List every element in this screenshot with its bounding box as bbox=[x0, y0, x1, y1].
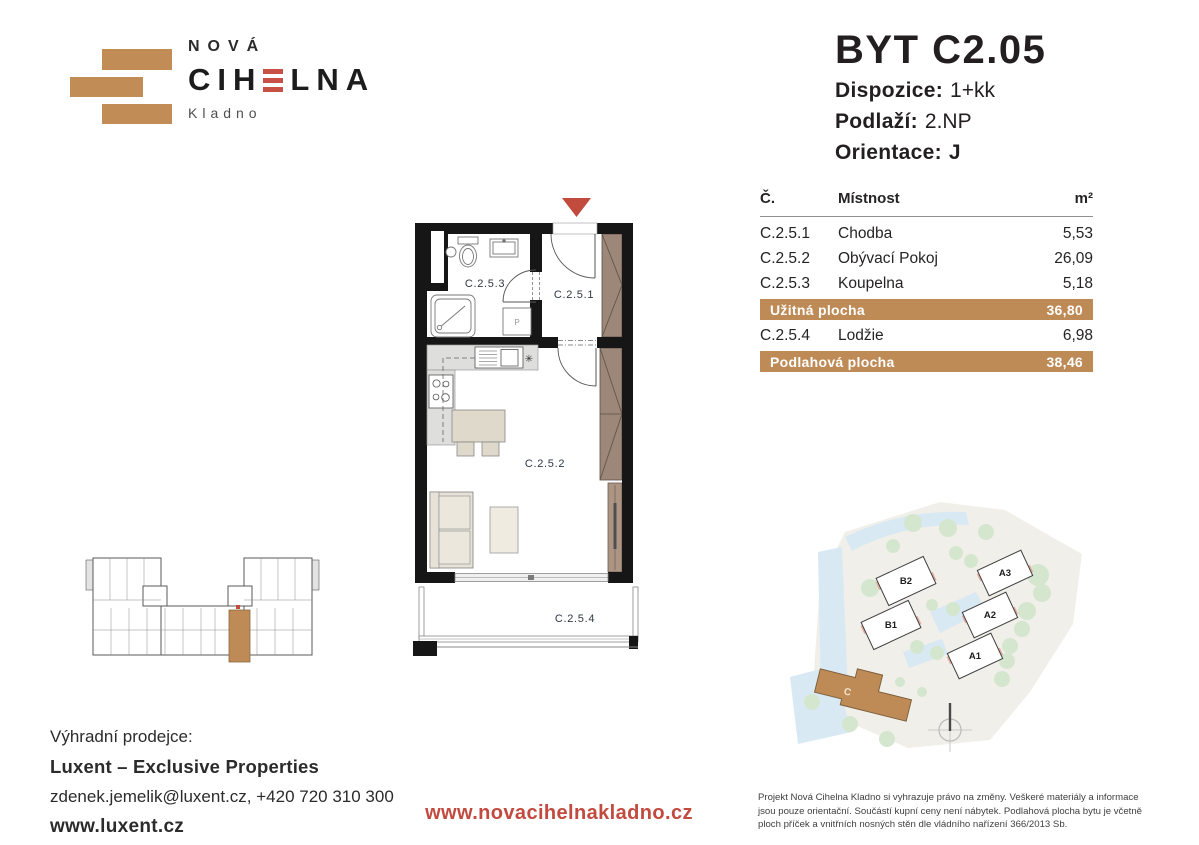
seller-intro: Výhradní prodejce: bbox=[50, 727, 394, 747]
wardrobe-handle bbox=[614, 503, 617, 549]
brochure-page: NOVÁ CIHLNA Kladno BYT C2.05 Dispozice:1… bbox=[0, 0, 1199, 845]
flat-orientation: Orientace:J bbox=[835, 141, 1175, 165]
building-label-a2: A2 bbox=[984, 610, 996, 621]
room-label-hall: C.2.5.1 bbox=[554, 289, 594, 301]
toilet-tank bbox=[458, 237, 478, 244]
logo-line-cihelna: CIHLNA bbox=[188, 62, 375, 98]
bathroom-door bbox=[503, 270, 540, 302]
col-room: Místnost bbox=[838, 186, 1075, 211]
logo-line-nova: NOVÁ bbox=[188, 38, 375, 56]
wardrobe bbox=[600, 234, 622, 572]
shaft bbox=[431, 231, 444, 283]
logo-e-bars-icon bbox=[263, 69, 283, 92]
col-number: Č. bbox=[760, 186, 838, 211]
area-table-header: Č. Místnost m² bbox=[760, 186, 1093, 217]
project-website-link[interactable]: www.novacihelnakladno.cz bbox=[403, 802, 715, 825]
logo: NOVÁ CIHLNA Kladno bbox=[60, 30, 420, 145]
living-furniture bbox=[430, 492, 518, 568]
entry-door bbox=[551, 223, 597, 278]
seller-name: Luxent – Exclusive Properties bbox=[50, 756, 394, 778]
floor-label: Podlaží: bbox=[835, 110, 918, 133]
disclaimer-text: Projekt Nová Cihelna Kladno si vyhrazuje… bbox=[758, 791, 1158, 832]
flat-floor: Podlaží:2.NP bbox=[835, 110, 1175, 134]
unit-marker-icon bbox=[236, 605, 240, 609]
loggia bbox=[413, 587, 638, 656]
usable-area-bar: Užitná plocha 36,80 bbox=[760, 299, 1093, 320]
highlighted-unit bbox=[229, 610, 250, 662]
room-label-living: C.2.5.2 bbox=[525, 458, 565, 470]
kitchen-sink-unit bbox=[475, 347, 523, 368]
loggia-window bbox=[455, 574, 608, 582]
dining-table bbox=[452, 410, 505, 442]
building-label-b1: B1 bbox=[885, 620, 898, 631]
floor-value: 2.NP bbox=[925, 110, 972, 133]
orientation-value: J bbox=[949, 141, 961, 164]
col-area: m² bbox=[1075, 186, 1093, 211]
logo-cihelna-post: LNA bbox=[290, 62, 375, 98]
chair bbox=[482, 442, 499, 456]
logo-brick-middle bbox=[70, 77, 143, 97]
svg-text:P: P bbox=[514, 318, 519, 327]
corner-basin bbox=[446, 247, 456, 257]
fridge-snowflake-icon: ✳ bbox=[525, 354, 533, 365]
flat-disposition: Dispozice:1+kk bbox=[835, 79, 1175, 103]
seller-contact: zdenek.jemelik@luxent.cz, +420 720 310 3… bbox=[50, 787, 394, 807]
logo-text: NOVÁ CIHLNA Kladno bbox=[188, 38, 375, 121]
building-label-a1: A1 bbox=[969, 651, 982, 662]
coffee-table bbox=[490, 507, 518, 553]
disposition-label: Dispozice: bbox=[835, 79, 943, 102]
floor-area-bar: Podlahová plocha 38,46 bbox=[760, 351, 1093, 372]
orientation-label: Orientace: bbox=[835, 141, 942, 164]
kitchen: ✳ bbox=[427, 345, 538, 456]
room-label-loggia: C.2.5.4 bbox=[555, 613, 595, 625]
room-label-bath: C.2.5.3 bbox=[465, 278, 505, 290]
table-row: C.2.5.4 Lodžie 6,98 bbox=[760, 323, 1093, 348]
logo-brick-top bbox=[102, 49, 172, 70]
flat-title: BYT C2.05 bbox=[835, 28, 1175, 72]
area-table: Č. Místnost m² C.2.5.1 Chodba 5,53 C.2.5… bbox=[760, 186, 1093, 375]
table-row: C.2.5.3 Koupelna 5,18 bbox=[760, 271, 1093, 296]
building-label-b2: B2 bbox=[900, 576, 912, 587]
table-row: C.2.5.2 Obývací Pokoj 26,09 bbox=[760, 246, 1093, 271]
seller-website-link[interactable]: www.luxent.cz bbox=[50, 816, 394, 838]
logo-cihelna-pre: CIH bbox=[188, 62, 262, 98]
building-overview bbox=[85, 550, 320, 670]
seller-block: Výhradní prodejce: Luxent – Exclusive Pr… bbox=[50, 727, 394, 838]
flat-header: BYT C2.05 Dispozice:1+kk Podlaží:2.NP Or… bbox=[835, 28, 1175, 165]
building-label-a3: A3 bbox=[999, 568, 1011, 579]
entrance-arrow-icon bbox=[562, 198, 591, 217]
disposition-value: 1+kk bbox=[950, 79, 995, 102]
living-door bbox=[558, 341, 597, 387]
table-row: C.2.5.1 Chodba 5,53 bbox=[760, 221, 1093, 246]
chair bbox=[457, 442, 474, 456]
stove-icon bbox=[429, 375, 453, 408]
logo-brick-bottom bbox=[102, 104, 172, 124]
floorplan-drawing: P ✳ bbox=[405, 195, 655, 670]
siteplan: B2 B1 A3 A2 A1 C bbox=[790, 492, 1095, 762]
logo-city: Kladno bbox=[188, 105, 375, 121]
floorplan: P ✳ bbox=[405, 195, 655, 670]
